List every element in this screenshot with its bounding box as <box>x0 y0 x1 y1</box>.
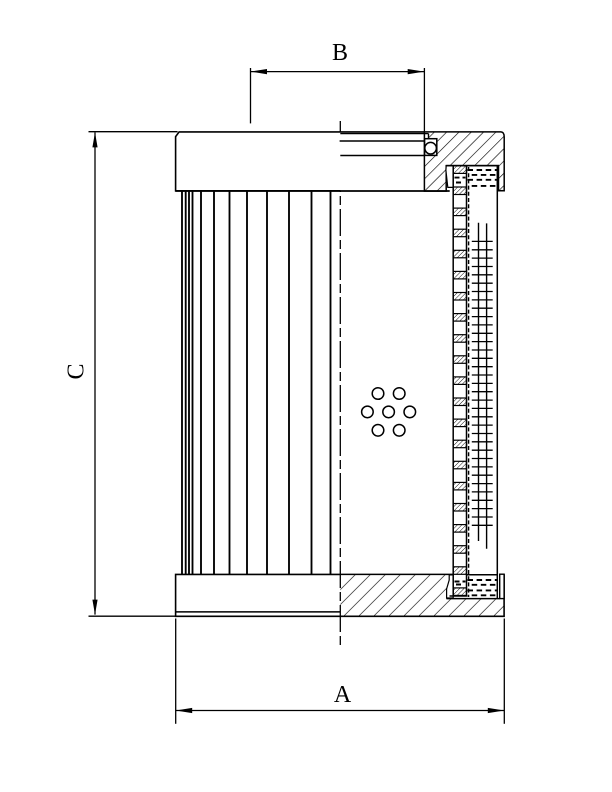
svg-text:B: B <box>332 40 348 66</box>
svg-text:C: C <box>64 363 90 379</box>
svg-text:A: A <box>334 682 352 708</box>
